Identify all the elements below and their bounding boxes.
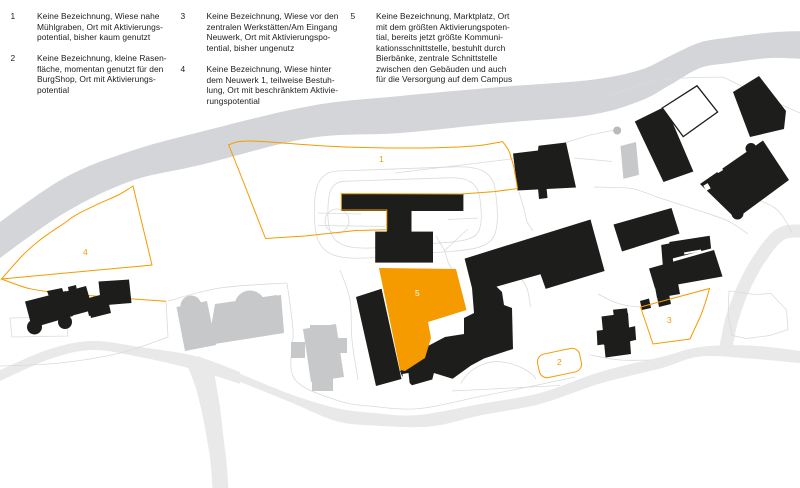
svg-text:1: 1 <box>379 154 384 164</box>
svg-text:5: 5 <box>415 288 420 298</box>
svg-text:2: 2 <box>557 357 562 367</box>
svg-text:4: 4 <box>83 247 88 257</box>
svg-text:3: 3 <box>667 315 672 325</box>
